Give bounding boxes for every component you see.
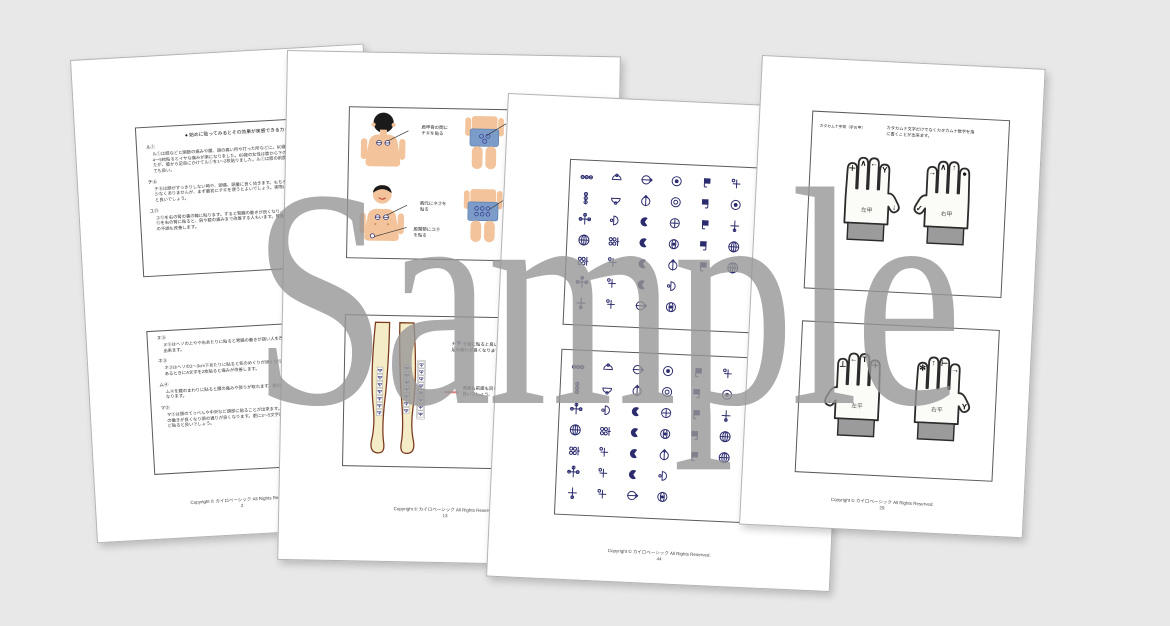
glove-right-back: → ∧ ↑ ● ✓ 右甲 bbox=[909, 157, 985, 248]
katakamuna-glyph-flagr bbox=[700, 176, 714, 190]
katakamuna-glyph-halfright bbox=[657, 469, 671, 483]
finger-symbol: ↑ bbox=[932, 358, 936, 367]
glove-left-palm: ⊥ ← T ＋ ↓ 左平 bbox=[819, 348, 895, 439]
glove-right-palm: ✻ ↑ ⊢ → Y 右平 bbox=[899, 352, 975, 443]
katakamuna-glyph-targetdot bbox=[729, 198, 743, 212]
katakamuna-glyph-arrowright bbox=[634, 299, 648, 313]
katakamuna-glyph-globe bbox=[577, 233, 591, 247]
katakamuna-glyph-griddots bbox=[568, 444, 582, 458]
katakamuna-glyph-globe bbox=[718, 430, 732, 444]
katakamuna-glyph-halfdown bbox=[609, 193, 623, 207]
katakamuna-glyph-globe bbox=[717, 451, 731, 465]
katakamuna-glyph-crescent bbox=[638, 215, 652, 229]
katakamuna-glyph-crescent bbox=[628, 426, 642, 440]
figure-front-chest bbox=[353, 183, 410, 250]
finger-symbol: ⊥ bbox=[839, 360, 846, 369]
corner-label: カタカムナ手袋（手の甲） bbox=[819, 124, 877, 132]
katakamuna-glyph-crescent bbox=[635, 278, 649, 292]
thumb-symbol: ↓ bbox=[828, 396, 832, 405]
katakamuna-glyph-crossdots bbox=[578, 212, 592, 226]
katakamuna-glyph-flagr bbox=[689, 408, 703, 422]
glove-left-back: ＋ ∧ ← Y ↓ 左甲 bbox=[829, 153, 905, 244]
katakamuna-glyph-plusdot bbox=[721, 367, 735, 381]
page4-gloves-palm-box: ⊥ ← T ＋ ↓ 左平 ✻ ↑ ⊢ → Y 右平 bbox=[795, 320, 1000, 481]
sample-pages-collage: ● 始めに貼ってみるとその効果が実感できるカタカムナ ル① ル①は膝などと関節の… bbox=[0, 0, 1170, 626]
katakamuna-glyph-flagl bbox=[699, 197, 713, 211]
finger-symbol: → bbox=[928, 168, 936, 177]
katakamuna-glyph-halfright bbox=[665, 279, 679, 293]
katakamuna-glyph-targetdot bbox=[670, 174, 684, 188]
katakamuna-glyph-plusv bbox=[574, 296, 588, 310]
figure-hips-back bbox=[461, 114, 508, 175]
katakamuna-glyph-crescent bbox=[637, 236, 651, 250]
katakamuna-glyph-arrowup bbox=[657, 448, 671, 462]
katakamuna-glyph-arrowup bbox=[630, 384, 644, 398]
finger-symbol: ∧ bbox=[860, 159, 866, 168]
katakamuna-glyph-targetdot bbox=[720, 388, 734, 402]
katakamuna-glyph-plusdot bbox=[606, 256, 620, 270]
tape-strip-outside bbox=[417, 360, 426, 419]
katakamuna-glyph-eye bbox=[664, 300, 678, 314]
katakamuna-glyph-arrowright bbox=[626, 489, 640, 503]
katakamuna-glyph-griddots bbox=[598, 424, 612, 438]
katakamuna-glyph-flagr bbox=[696, 260, 710, 274]
katakamuna-glyph-flagr bbox=[698, 218, 712, 232]
katakamuna-glyph-ringring bbox=[660, 385, 674, 399]
copyright: Copyright © カイロベーシック All Rights Reserved… bbox=[488, 542, 830, 571]
katakamuna-glyph-griddots bbox=[576, 254, 590, 268]
katakamuna-glyph-plusdot bbox=[596, 487, 610, 501]
katakamuna-glyph-targetdot bbox=[661, 364, 675, 378]
katakamuna-glyph-hchain bbox=[580, 170, 594, 184]
katakamuna-glyph-arrowright bbox=[631, 363, 645, 377]
katakamuna-glyph-crescent bbox=[627, 447, 641, 461]
katakamuna-glyph-vchain bbox=[579, 191, 593, 205]
katakamuna-glyph-halfright bbox=[608, 214, 622, 228]
finger-symbol: ↑ bbox=[952, 163, 956, 172]
katakamuna-glyph-ringring bbox=[669, 195, 683, 209]
katakamuna-glyph-plusdot bbox=[730, 177, 744, 191]
finger-symbol: ✻ bbox=[919, 363, 926, 372]
katakamuna-glyph-flagl bbox=[697, 239, 711, 253]
katakamuna-glyph-flagr bbox=[687, 450, 701, 464]
katakamuna-glyph-halfup bbox=[601, 362, 615, 376]
katakamuna-glyph-plusdot bbox=[597, 466, 611, 480]
katakamuna-glyph-crescent bbox=[629, 405, 643, 419]
gloves-description: カタカムナ文字だけでなくカタカムナ数字を指 に書くことが出来ます。 bbox=[886, 125, 1002, 142]
katakamuna-glyph-arrowup bbox=[639, 194, 653, 208]
katakamuna-glyph-circlecross bbox=[659, 406, 673, 420]
figure-back-torso bbox=[355, 110, 412, 177]
red-pointer-line bbox=[444, 391, 458, 393]
katakamuna-glyph-plusdot bbox=[598, 445, 612, 459]
tape-strip-left-leg bbox=[376, 367, 383, 416]
katakamuna-glyph-crossdots bbox=[569, 402, 583, 416]
finger-symbol: ∧ bbox=[940, 162, 946, 171]
finger-symbol: ＋ bbox=[871, 361, 879, 370]
finger-symbol: ← bbox=[870, 159, 878, 168]
finger-symbol: ● bbox=[962, 169, 967, 178]
katakamuna-glyph-halfright bbox=[599, 403, 613, 417]
finger-symbol: ← bbox=[850, 354, 858, 363]
katakamuna-glyph-flagl bbox=[690, 387, 704, 401]
katakamuna-glyph-eye bbox=[658, 427, 672, 441]
katakamuna-glyph-halfdown bbox=[600, 383, 614, 397]
katakamuna-glyph-plusdot bbox=[605, 277, 619, 291]
page4-gloves-back-box: カタカムナ手袋（手の甲） カタカムナ文字だけでなくカタカムナ数字を指 に書くこと… bbox=[804, 111, 1010, 298]
katakamuna-glyph-globe bbox=[727, 240, 741, 254]
katakamuna-glyph-arrowright bbox=[640, 173, 654, 187]
finger-symbol: ＋ bbox=[848, 164, 856, 173]
thumb-symbol: ↓ bbox=[892, 203, 896, 212]
katakamuna-glyph-globe bbox=[726, 261, 740, 275]
katakamuna-glyph-hchain bbox=[571, 360, 585, 374]
tape-strip-right-leg bbox=[403, 365, 410, 414]
katakamuna-glyph-plusdot bbox=[604, 298, 618, 312]
katakamuna-glyph-vchain bbox=[570, 381, 584, 395]
figure-hips-front bbox=[459, 187, 506, 248]
katakamuna-glyph-eye bbox=[656, 490, 670, 504]
katakamuna-glyph-plusv bbox=[566, 486, 580, 500]
page-sheet-4: カタカムナ手袋（手の甲） カタカムナ文字だけでなくカタカムナ数字を指 に書くこと… bbox=[739, 55, 1046, 538]
katakamuna-glyph-globe bbox=[568, 423, 582, 437]
katakamuna-glyph-crescent bbox=[627, 468, 641, 482]
katakamuna-glyph-circlecross bbox=[668, 216, 682, 230]
figure-legs-back bbox=[351, 320, 450, 460]
katakamuna-glyph-crossdots bbox=[575, 275, 589, 289]
katakamuna-glyph-flagl bbox=[688, 429, 702, 443]
katakamuna-glyph-flagr bbox=[691, 366, 705, 380]
katakamuna-glyph-plusv bbox=[719, 409, 733, 423]
katakamuna-glyph-halfup bbox=[610, 172, 624, 186]
katakamuna-glyph-griddots bbox=[607, 235, 621, 249]
katakamuna-glyph-arrowup bbox=[666, 258, 680, 272]
katakamuna-glyph-crossdots bbox=[567, 465, 581, 479]
katakamuna-glyph-eye bbox=[667, 237, 681, 251]
finger-symbol: ⊢ bbox=[941, 358, 948, 368]
katakamuna-glyph-crescent bbox=[636, 257, 650, 271]
thumb-symbol: ✓ bbox=[916, 204, 923, 213]
copyright: Copyright © カイロベーシック All Rights Reserved… bbox=[741, 492, 1023, 519]
finger-symbol: T bbox=[862, 355, 867, 364]
finger-symbol: → bbox=[951, 365, 959, 374]
katakamuna-glyph-plusv bbox=[728, 219, 742, 233]
